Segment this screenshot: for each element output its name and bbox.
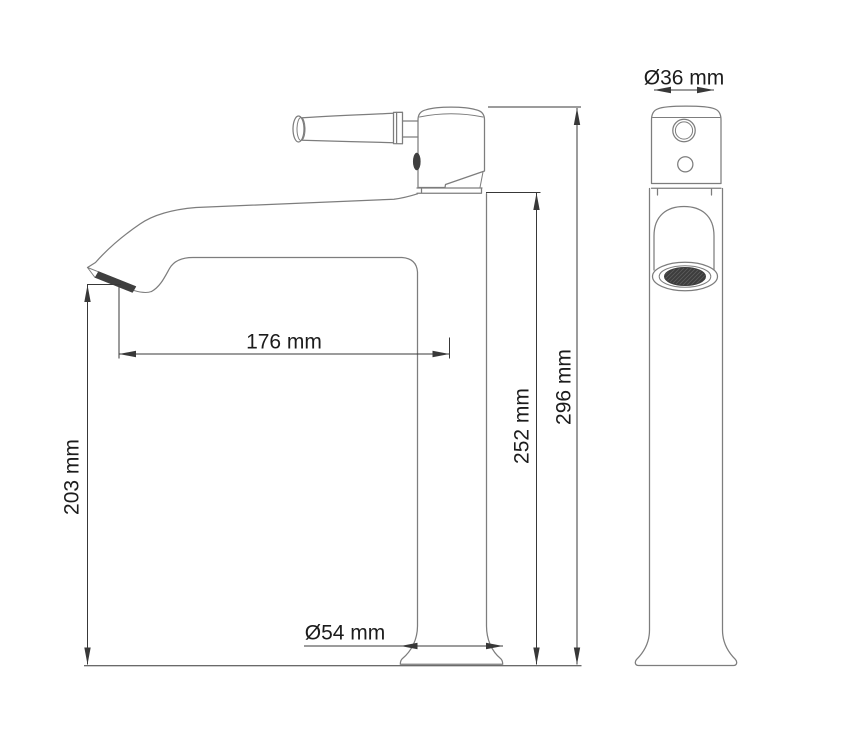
arrowhead-left [401, 643, 418, 649]
dimension-label-total-height: 296 mm [553, 349, 576, 425]
arrowhead-left [119, 351, 136, 357]
dimension-total-height: 296 mm [488, 107, 581, 665]
handle-mount-ring-inner [675, 122, 692, 139]
dimension-body-height: 252 mm [486, 193, 541, 665]
dimensions: 203 mm 176 mm 252 mm 296 mm [61, 67, 725, 666]
arrowhead-up [574, 108, 580, 125]
aerator-screen [665, 268, 706, 286]
spout-and-body-outline [88, 194, 503, 665]
arrowhead-down [574, 648, 580, 665]
head-chamfer-edge [480, 172, 483, 188]
dimension-body-diameter: Ø36 mm [644, 67, 725, 94]
dimension-label-body-diameter: Ø36 mm [644, 67, 725, 90]
set-screw-hole [413, 153, 420, 170]
cartridge-head [413, 107, 484, 193]
dimension-label-body-height: 252 mm [511, 388, 534, 464]
dimension-base-diameter: Ø54 mm [304, 622, 503, 650]
handle-lever [293, 112, 418, 144]
front-set-screw-circle [678, 157, 693, 172]
arrowhead-right [486, 643, 503, 649]
dimension-spout-reach: 176 mm [119, 287, 450, 359]
dimension-label-spout-reach: 176 mm [246, 331, 322, 354]
arrowhead-down [533, 648, 539, 665]
handle-mount-ring-outer [673, 119, 695, 141]
arrowhead-up [84, 285, 90, 302]
aerator-front [653, 262, 718, 290]
dimension-label-outlet-height: 203 mm [61, 439, 84, 515]
handle-collar [394, 112, 403, 144]
faucet-technical-drawing: 203 mm 176 mm 252 mm 296 mm [0, 0, 859, 740]
arrowhead-right [433, 351, 450, 357]
arrowhead-down [84, 648, 90, 665]
head-cap-seam [420, 114, 484, 117]
head-outline [418, 107, 485, 187]
dimension-outlet-height: 203 mm [61, 285, 122, 665]
handle-stem [403, 121, 419, 137]
front-head [652, 106, 722, 195]
side-view-faucet [88, 107, 503, 664]
arrowhead-up [533, 193, 539, 210]
spout-arch [654, 207, 714, 271]
dimension-label-base-diameter: Ø54 mm [305, 622, 386, 645]
front-head-joint [652, 188, 722, 195]
spout-aerator-dark [95, 272, 136, 293]
front-body-outline [635, 189, 736, 666]
handle-grip [303, 113, 394, 142]
head-flange [417, 188, 482, 193]
front-view-faucet [635, 106, 736, 665]
